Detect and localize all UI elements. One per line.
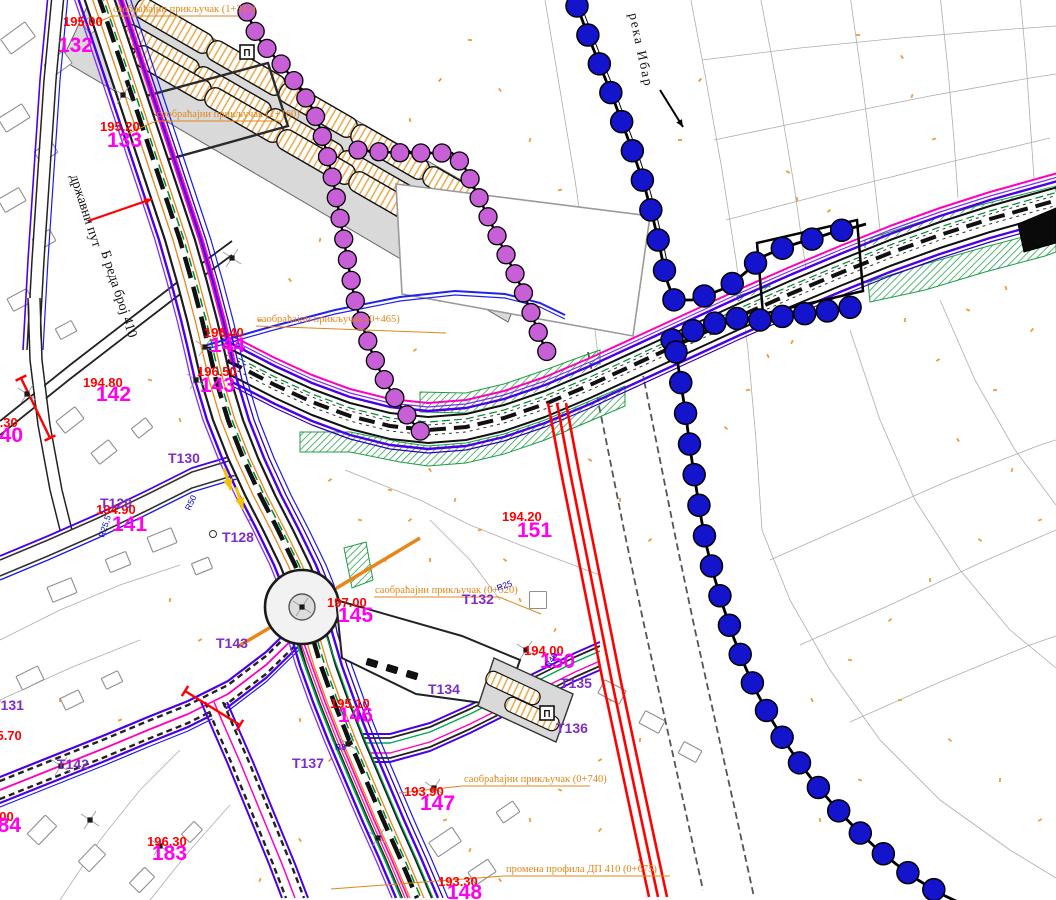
tree-row-blue: [693, 525, 715, 547]
building: [429, 827, 462, 857]
tree-row-violet: [514, 284, 532, 302]
tree-row-violet: [538, 342, 556, 360]
section-number: 146: [338, 704, 373, 727]
tree-row-violet: [246, 22, 264, 40]
section-number: 144: [210, 334, 245, 357]
spot-elevation-marks: [288, 278, 292, 282]
spot-elevation-marks: [319, 238, 321, 242]
spot-elevation-marks: [118, 719, 122, 722]
t-point-label: T135: [560, 675, 592, 691]
tree-row-blue: [923, 879, 945, 900]
spot-elevation-marks: [409, 118, 412, 122]
spot-elevation-marks: [598, 758, 602, 762]
tree-row-violet: [359, 332, 377, 350]
tree-row-violet: [497, 246, 515, 264]
dimension-arrow-red: [88, 199, 152, 221]
spot-elevation-marks: [698, 78, 702, 82]
tree-row-violet: [461, 170, 479, 188]
spot-elevation-marks: [619, 498, 621, 502]
spot-elevation-marks: [648, 538, 652, 542]
parcel-line: [0, 565, 180, 640]
parking-symbol-glyph: П: [543, 709, 550, 720]
spot-elevation-marks: [1005, 286, 1008, 290]
tree-row-violet: [411, 422, 429, 440]
t-point-label: T134: [428, 681, 460, 697]
spot-elevation-marks: [911, 94, 914, 98]
tree-row-blue: [801, 228, 823, 250]
note-leader: [374, 597, 541, 614]
spot-elevation-marks: [358, 519, 362, 522]
section-number: 183: [152, 842, 187, 865]
parcel-line: [1020, 0, 1034, 178]
spot-elevation-marks: [429, 558, 431, 562]
spot-elevation-marks: [796, 197, 798, 201]
tree-row-violet: [338, 251, 356, 269]
spot-elevation-marks: [498, 878, 502, 882]
tree-row-violet: [327, 189, 345, 207]
section-number: 184: [0, 814, 21, 837]
spot-elevation-marks: [1038, 818, 1042, 822]
tree-row-violet: [297, 89, 315, 107]
tree-row-blue: [704, 312, 726, 334]
building: [191, 557, 212, 575]
map-layers: ППсаобраћајни прикључак (1+315)саобраћај…: [0, 0, 1056, 900]
tree-row-blue: [828, 800, 850, 822]
boundary-dashed: [588, 352, 703, 890]
road-southwest: [0, 630, 302, 792]
tree-row-blue: [665, 341, 687, 363]
spot-elevation-marks: [936, 358, 940, 362]
t-point-label: T128: [222, 529, 254, 545]
station-marker: [375, 835, 380, 840]
tree-row-blue: [577, 24, 599, 46]
tree-row-blue: [897, 862, 919, 884]
tree-row-blue: [670, 372, 692, 394]
spot-elevation-marks: [810, 698, 813, 702]
tree-row-violet: [335, 230, 353, 248]
spot-elevation-marks: [978, 538, 982, 542]
tree-row-violet: [529, 323, 547, 341]
section-number: 145: [338, 604, 373, 627]
road-south-branch: [205, 702, 286, 898]
spot-elevation-marks: [678, 139, 682, 141]
tree-row-violet: [488, 227, 506, 245]
station-marker: [24, 391, 29, 396]
river-name-label: река Ибар: [626, 12, 656, 89]
building: [60, 690, 84, 710]
tree-row-blue: [683, 464, 705, 486]
road-southwest: [0, 617, 302, 779]
building: [16, 666, 44, 690]
building: [47, 578, 77, 603]
tree-row-violet: [331, 209, 349, 227]
t-point-label: T129: [100, 495, 132, 511]
building: [639, 711, 665, 734]
tree-row-blue: [688, 494, 710, 516]
note-label: саобраћајни прикључак (0+740): [464, 774, 607, 785]
spot-elevation-marks: [786, 170, 790, 174]
spot-elevation-marks: [724, 426, 728, 430]
tree-row-violet: [522, 304, 540, 322]
radius-label: R8: [335, 742, 346, 752]
spot-elevation-marks: [148, 379, 152, 382]
spot-elevation-marks: [408, 518, 412, 522]
building: [27, 815, 57, 845]
building: [101, 671, 122, 690]
tree-row-violet: [391, 144, 409, 162]
road-name-label: државни пут: [66, 173, 104, 250]
spot-elevation-marks: [558, 788, 562, 791]
section-number: 148: [447, 881, 482, 900]
tree-row-violet: [272, 55, 290, 73]
tree-row-blue: [872, 843, 894, 865]
tree-row-violet: [506, 265, 524, 283]
section-number: 133: [107, 129, 142, 152]
section-number: 143: [200, 374, 235, 397]
spot-elevation-marks: [503, 558, 507, 562]
tree-row-blue: [721, 272, 743, 294]
tree-row-violet: [323, 168, 341, 186]
spot-elevation-marks: [993, 389, 997, 391]
spot-elevation-marks: [1030, 328, 1034, 332]
tree-row-blue: [807, 776, 829, 798]
parcel-line: [760, 0, 806, 270]
spot-elevation-marks: [598, 828, 602, 832]
tree-row-blue: [663, 289, 685, 311]
tree-row-blue: [709, 585, 731, 607]
spot-elevation-marks: [856, 34, 860, 36]
spot-elevation-marks: [528, 138, 531, 142]
t-point-label: T130: [168, 450, 200, 466]
station-marker: [229, 255, 234, 260]
building: [496, 801, 520, 823]
spot-elevation-marks: [966, 308, 970, 311]
building: [105, 551, 131, 572]
tree-row-blue: [729, 643, 751, 665]
spot-elevation-marks: [428, 468, 432, 472]
tree-row-blue: [682, 320, 704, 342]
building: [0, 104, 30, 132]
tree-row-violet: [433, 144, 451, 162]
road-south-branch: [227, 702, 308, 898]
spot-elevation-marks: [1038, 518, 1042, 521]
tree-row-blue: [794, 303, 816, 325]
tree-row-blue: [566, 0, 588, 17]
section-number: 132: [58, 34, 93, 57]
tree-row-blue: [771, 305, 793, 327]
tree-row-violet: [398, 406, 416, 424]
section-number: 151: [517, 519, 552, 542]
spot-elevation-marks: [999, 778, 1001, 782]
building: [129, 867, 154, 893]
spot-elevation-marks: [388, 489, 392, 492]
spot-elevation-marks: [639, 738, 641, 742]
spot-elevation-marks: [1011, 468, 1014, 472]
tree-row-violet: [370, 143, 388, 161]
building: [91, 440, 117, 465]
building: [530, 592, 547, 609]
station-marker: [202, 344, 207, 349]
tree-row-violet: [285, 72, 303, 90]
tree-row-blue: [679, 433, 701, 455]
tree-row-blue: [771, 237, 793, 259]
note-label: саобраћајни прикључак (1+315): [113, 4, 256, 15]
tree-row-blue: [600, 82, 622, 104]
tree-row-blue: [640, 199, 662, 221]
elevation-label: 195.00: [63, 14, 103, 29]
tree-row-blue: [741, 672, 763, 694]
building: [147, 528, 177, 553]
spot-elevation-marks: [898, 699, 902, 701]
section-number: 142: [96, 383, 131, 406]
tree-row-blue: [726, 307, 748, 329]
spot-elevation-marks: [498, 88, 502, 92]
site-plan-map: ППсаобраћајни прикључак (1+315)саобраћај…: [0, 0, 1056, 900]
spot-elevation-marks: [438, 78, 442, 82]
note-label: саобраћајни прикључак (1+160): [157, 109, 300, 120]
spot-elevation-marks: [178, 418, 181, 422]
tree-row-blue: [749, 309, 771, 331]
building: [1, 22, 36, 54]
station-marker: [299, 604, 304, 609]
spot-elevation-marks: [819, 818, 822, 822]
tree-row-blue: [789, 752, 811, 774]
parcel-line: [940, 0, 958, 198]
tree-row-blue: [839, 296, 861, 318]
tree-row-violet: [258, 39, 276, 57]
parcel-line: [714, 74, 1056, 140]
spot-elevation-marks: [553, 628, 557, 632]
spot-elevation-marks: [413, 348, 417, 352]
tree-row-blue: [718, 614, 740, 636]
site-plan-page: ППсаобраћајни прикључак (1+315)саобраћај…: [0, 0, 1056, 900]
note-leader: [256, 326, 446, 333]
parcel-line: [850, 636, 1056, 722]
spot-elevation-marks: [904, 318, 906, 322]
tree-row-blue: [611, 111, 633, 133]
tree-row-violet: [307, 107, 325, 125]
building: [56, 407, 84, 434]
section-number: 147: [420, 792, 455, 815]
station-marker: [345, 741, 350, 746]
t-point-label: T132: [462, 591, 494, 607]
spot-elevation-marks: [888, 618, 892, 622]
tree-row-blue: [653, 259, 675, 281]
spot-elevation-marks: [900, 55, 904, 59]
spot-elevation-marks: [299, 718, 302, 722]
note-label: промена профила ДП 410 (0+675): [506, 864, 657, 875]
building: [678, 742, 702, 763]
tree-row-violet: [342, 271, 360, 289]
tree-row-blue: [771, 726, 793, 748]
t-point-label: T131: [0, 697, 24, 713]
tree-row-blue: [831, 219, 853, 241]
building: [78, 844, 105, 872]
tree-row-blue: [700, 555, 722, 577]
spot-elevation-marks: [956, 438, 960, 442]
section-number: 141: [112, 513, 147, 536]
spot-elevation-marks: [468, 848, 471, 852]
tree-row-violet: [313, 127, 331, 145]
arrow-head: [223, 478, 232, 490]
spot-elevation-marks: [558, 189, 562, 192]
spot-elevation-marks: [518, 598, 521, 602]
t-point-label: T136: [556, 720, 588, 736]
parcel-line: [0, 640, 140, 700]
tree-row-violet: [349, 141, 367, 159]
tree-row-blue: [693, 285, 715, 307]
tree-row-blue: [755, 699, 777, 721]
spot-elevation-marks: [468, 39, 472, 41]
tree-row-violet: [375, 371, 393, 389]
benchmark-symbol: [210, 531, 217, 538]
note-label: саобраћајни прикључак (0+465): [257, 314, 400, 325]
tree-row-violet: [346, 292, 364, 310]
parcel-line: [800, 530, 1056, 645]
parcel-line: [762, 530, 1056, 878]
tree-row-blue: [647, 229, 669, 251]
spot-elevation-marks: [169, 598, 171, 602]
spot-elevation-marks: [198, 638, 202, 641]
road-south-branch: [201, 702, 282, 898]
tree-row-violet: [479, 208, 497, 226]
spot-elevation-marks: [328, 478, 332, 482]
spot-elevation-marks: [258, 878, 261, 882]
spot-elevation-marks: [746, 389, 750, 391]
tree-row-violet: [366, 352, 384, 370]
spot-elevation-marks: [848, 659, 852, 662]
t-point-label: T137: [292, 755, 324, 771]
elevation-label: 195.70: [0, 728, 22, 743]
tree-row-blue: [675, 402, 697, 424]
spot-elevation-marks: [588, 458, 592, 462]
station-marker: [120, 92, 125, 97]
tree-row-blue: [588, 53, 610, 75]
spot-elevation-marks: [929, 578, 931, 582]
spot-elevation-marks: [948, 738, 952, 742]
tree-row-blue: [621, 140, 643, 162]
spot-elevation-marks: [932, 137, 936, 140]
tree-row-blue: [816, 300, 838, 322]
t-point-label: T142: [57, 756, 89, 772]
parcel-line: [702, 26, 1056, 60]
parcel-line: [940, 300, 1056, 505]
t-point-label: T143: [216, 635, 248, 651]
tree-row-violet: [450, 152, 468, 170]
parcel-line: [850, 330, 1056, 668]
spot-elevation-marks: [454, 498, 457, 502]
building: [131, 418, 153, 439]
tree-row-violet: [470, 189, 488, 207]
section-number: 140: [0, 424, 23, 447]
spot-elevation-marks: [858, 778, 862, 781]
tree-row-violet: [318, 148, 336, 166]
parcel-line: [770, 440, 1056, 560]
spot-elevation-marks: [298, 838, 302, 842]
parcel-line: [850, 0, 880, 230]
spot-elevation-marks: [529, 818, 532, 822]
parking-symbol-glyph: П: [243, 48, 250, 59]
tree-row-blue: [745, 252, 767, 274]
tree-row-blue: [631, 169, 653, 191]
building: [55, 320, 77, 339]
station-marker: [87, 817, 92, 822]
tree-row-violet: [386, 389, 404, 407]
spot-elevation-marks: [790, 340, 793, 344]
spot-elevation-marks: [827, 209, 831, 213]
spot-elevation-marks: [443, 819, 447, 822]
tree-row-violet: [412, 144, 430, 162]
spot-elevation-marks: [766, 354, 769, 358]
road-name-label: Б реда број 410: [97, 249, 139, 340]
tree-row-blue: [849, 822, 871, 844]
building: [0, 188, 26, 213]
